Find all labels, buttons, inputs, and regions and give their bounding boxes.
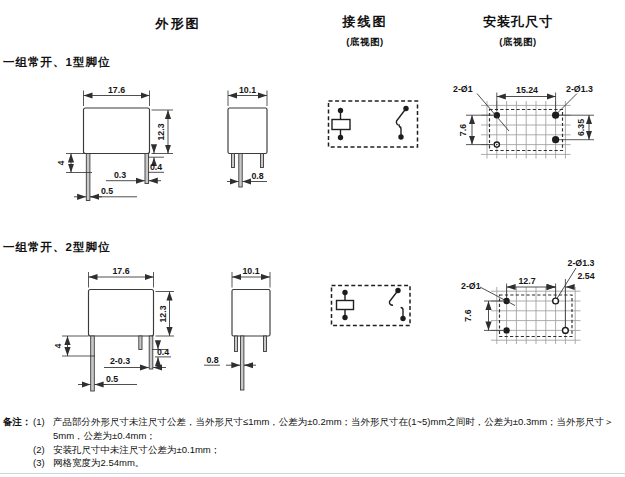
coil-terminal [342, 315, 347, 320]
type1-mounting-holes: 15.24 2-Ø1 2-Ø1.3 7.6 6.35 [453, 84, 594, 159]
pin-long [241, 336, 244, 390]
type1-front-view: 17.6 12.3 4 0.4 0.3 0.5 [56, 85, 173, 201]
dim-label: 0.5 [101, 186, 113, 196]
note-number: (3) [33, 456, 53, 470]
dim-label: 10.1 [242, 266, 259, 276]
relay-body-front [89, 290, 154, 337]
coil-terminal [342, 290, 347, 295]
type1-wiring-diagram [329, 101, 418, 147]
note-text: 安装孔尺寸中未注尺寸公差为±0.1mm； [53, 443, 621, 457]
note-number: (1) [33, 415, 53, 443]
type1-side-view: 10.1 0.8 [227, 85, 267, 188]
coil-terminal [338, 108, 343, 113]
dim-label: 6.35 [576, 119, 586, 136]
dim-label: 12.3 [156, 123, 166, 140]
hole-spec-label: 2-Ø1 [461, 281, 481, 291]
relay-body-front [84, 108, 150, 154]
dim-label: 7.6 [463, 309, 473, 321]
pin [261, 154, 264, 168]
dim-label: 10.1 [239, 85, 256, 95]
technical-drawings: 17.6 12.3 4 0.4 0.3 0.5 [0, 0, 625, 477]
dim-label: 15.24 [516, 85, 538, 95]
notes-block: 备注： (1) 产品部分外形尺寸未注尺寸公差，当外形尺寸≤1mm，公差为±0.2… [3, 415, 621, 470]
pin-long [91, 336, 95, 391]
contact-blade [396, 109, 406, 126]
dim-label: 12.7 [518, 276, 535, 286]
dim-label: 17.6 [108, 85, 125, 95]
dim-label: 4 [56, 160, 66, 165]
hole-spec-label: 2-Ø1 [453, 84, 473, 94]
mount-hole-open [563, 328, 569, 334]
coil-symbol [337, 301, 354, 310]
pin-short [139, 336, 142, 350]
dim-label: 12.3 [158, 305, 168, 322]
note-item: (2) 安装孔尺寸中未注尺寸公差为±0.1mm； [33, 443, 621, 457]
coil-symbol [332, 120, 350, 130]
type2-front-view: 17.6 12.3 4 0.4 2-0.3 0.5 [53, 266, 175, 391]
relay-dimension-sheet: 外形图 接线图 (底视图) 安装孔尺寸 (底视图) 一组常开、1型脚位 一组常开… [0, 0, 625, 477]
note-text: 产品部分外形尺寸未注尺寸公差，当外形尺寸≤1mm，公差为±0.2mm；当外形尺寸… [53, 415, 621, 443]
dim-label: 0.3 [114, 170, 126, 180]
dim-label: 0.5 [106, 374, 118, 384]
type2-mounting-holes: 12.7 2.54 2-Ø1.3 2-Ø1 7.6 [461, 258, 595, 344]
relay-body-side [228, 108, 267, 154]
page-bottom-divider [0, 473, 625, 474]
note-item: (1) 产品部分外形尺寸未注尺寸公差，当外形尺寸≤1mm，公差为±0.2mm；当… [33, 415, 621, 443]
mount-hole [503, 327, 509, 333]
relay-body-side [232, 290, 270, 337]
hole-spec-label: 2-Ø1.3 [568, 258, 595, 268]
dim-label: 2-0.3 [110, 356, 130, 366]
pin-left [86, 154, 90, 201]
note-text: 网格宽度为2.54mm。 [53, 456, 621, 470]
contact-blade [389, 291, 398, 306]
notes-label: 备注： [3, 415, 33, 470]
note-item: (3) 网格宽度为2.54mm。 [33, 456, 621, 470]
coil-terminal [338, 135, 343, 140]
pin [264, 336, 267, 352]
type2-side-view: 10.1 0.8 [204, 266, 270, 390]
pin [149, 336, 153, 369]
dim-label: 0.4 [157, 347, 169, 357]
dim-label: 0.8 [251, 171, 263, 181]
pin-long [239, 154, 242, 188]
pin [235, 336, 238, 352]
hole-spec-label: 2-Ø1.3 [566, 84, 593, 94]
mount-hole [552, 136, 559, 143]
mount-hole [494, 112, 500, 118]
dim-label: 0.4 [150, 162, 162, 172]
note-number: (2) [33, 443, 53, 457]
dim-label: 17.6 [112, 266, 129, 276]
dim-label: 2.54 [577, 271, 594, 281]
mount-hole-center [496, 144, 498, 146]
pin [232, 154, 235, 168]
dim-label: 4 [53, 343, 63, 348]
mount-hole-open [553, 298, 559, 304]
type2-wiring-diagram [332, 286, 411, 326]
dim-label: 0.8 [206, 355, 218, 365]
dim-label: 7.6 [458, 124, 468, 136]
pin-right [145, 154, 149, 184]
